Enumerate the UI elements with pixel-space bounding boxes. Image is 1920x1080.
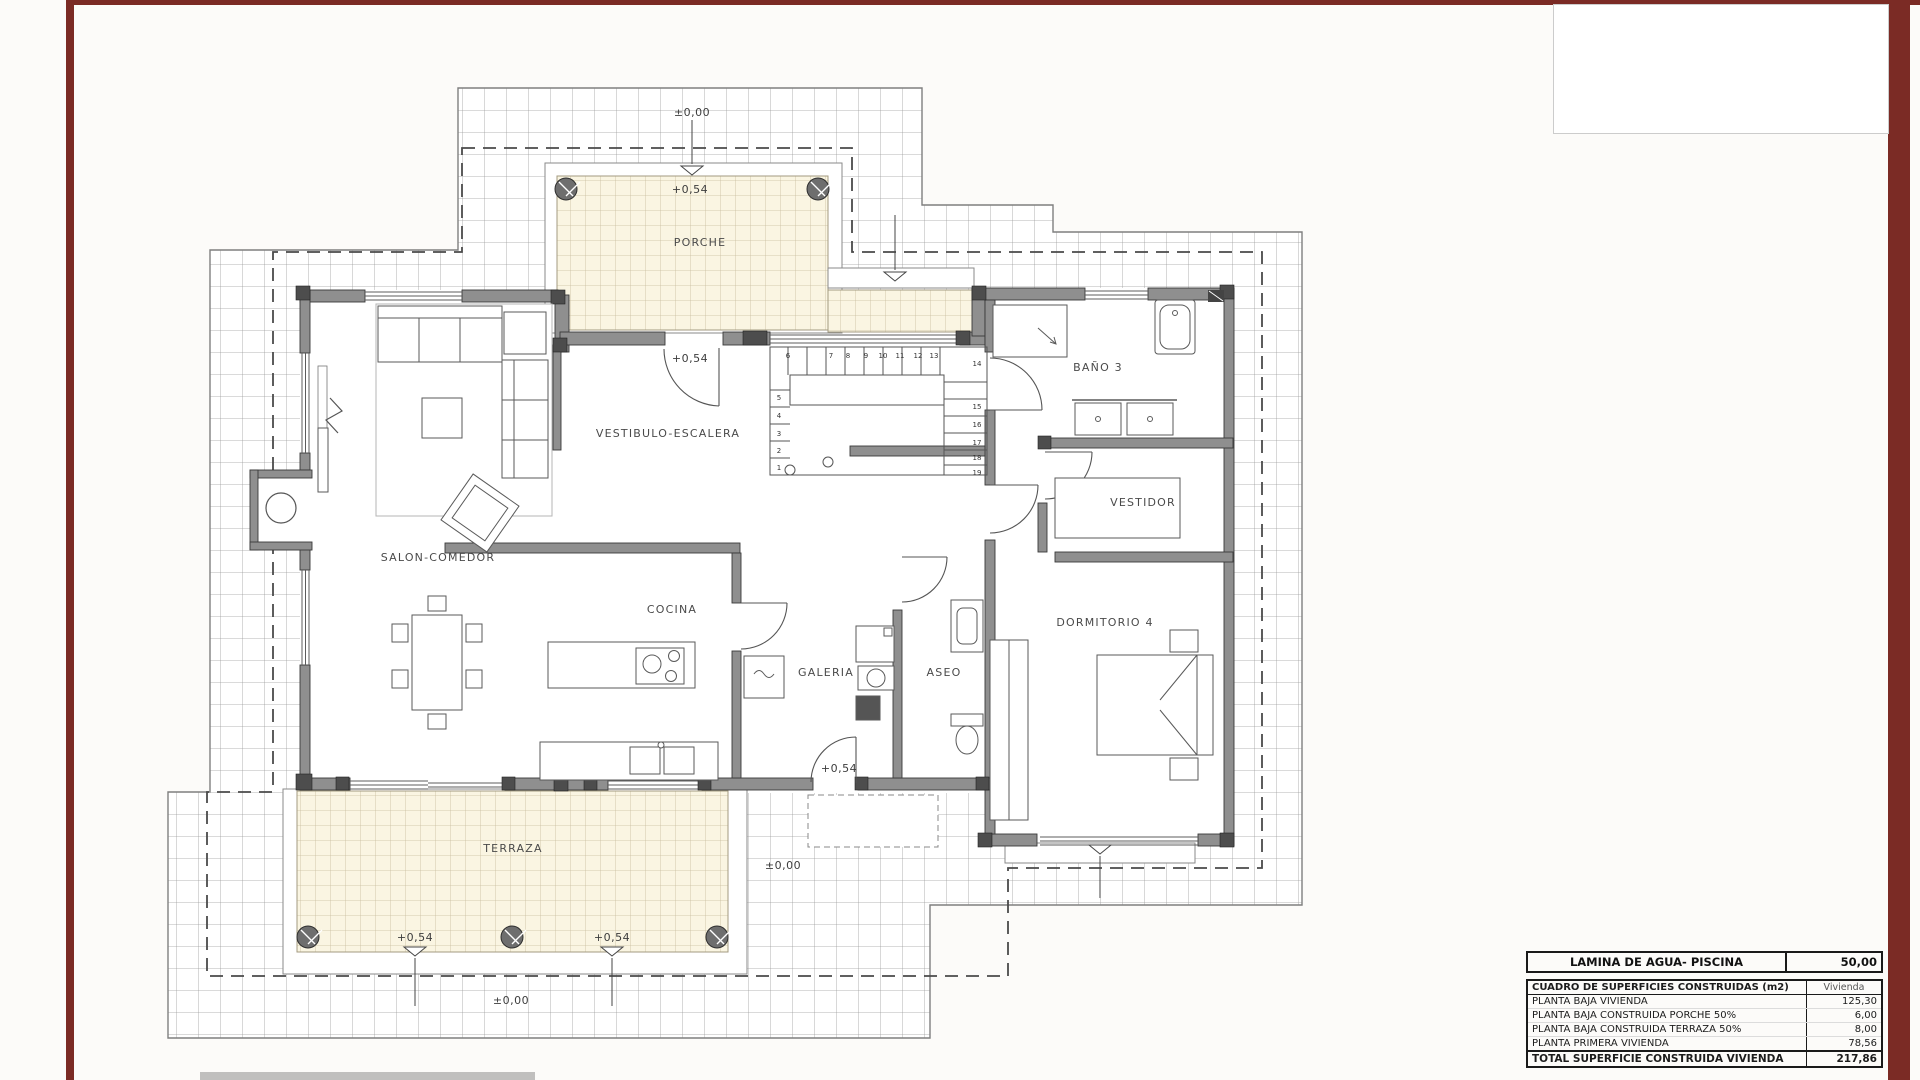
surfaces-table: CUADRO DE SUPERFICIES CONSTRUIDAS (m2) V… xyxy=(1526,979,1883,1068)
stair-number: 16 xyxy=(973,421,982,429)
cutoff-text-fragment xyxy=(200,1072,535,1080)
room-label-vestibulo: VESTIBULO-ESCALERA xyxy=(596,427,740,440)
room-label-galeria: GALERIA xyxy=(798,666,854,679)
water-heater xyxy=(744,656,784,698)
rear-landing xyxy=(808,795,938,847)
stair-number: 19 xyxy=(973,469,982,477)
stair-number: 17 xyxy=(973,439,982,447)
level-label-backdoor: +0,54 xyxy=(821,762,857,775)
stair-number: 2 xyxy=(777,447,781,455)
level-label-terrace-1: +0,54 xyxy=(397,931,433,944)
table-total-row: TOTAL SUPERFICIE CONSTRUIDA VIVIENDA 217… xyxy=(1527,1051,1882,1067)
page-border-left xyxy=(66,0,74,1080)
stair-number: 9 xyxy=(864,352,868,360)
table-row: PLANTA PRIMERA VIVIENDA 78,56 xyxy=(1527,1037,1882,1052)
row-label: PLANTA BAJA CONSTRUIDA TERRAZA 50% xyxy=(1527,1023,1807,1037)
laundry-basin xyxy=(858,666,894,690)
floor-plan: 1 2 3 4 5 6 7 8 9 10 11 12 13 14 15 16 1… xyxy=(0,0,1920,1080)
room-label-bano3: BAÑO 3 xyxy=(1073,361,1123,374)
table-row: PLANTA BAJA CONSTRUIDA PORCHE 50% 6,00 xyxy=(1527,1009,1882,1023)
total-label: TOTAL SUPERFICIE CONSTRUIDA VIVIENDA xyxy=(1527,1051,1807,1067)
surfaces-header-value: Vivienda xyxy=(1807,980,1883,995)
drawing-page: 1 2 3 4 5 6 7 8 9 10 11 12 13 14 15 16 1… xyxy=(0,0,1920,1080)
total-value: 217,86 xyxy=(1807,1051,1883,1067)
kitchen-sink xyxy=(540,742,718,780)
row-value: 6,00 xyxy=(1807,1009,1883,1023)
shower xyxy=(993,305,1067,357)
stair-number: 11 xyxy=(896,352,905,360)
bedroom-wardrobe xyxy=(990,640,1028,820)
kitchen-island xyxy=(548,642,695,688)
room-label-vestidor: VESTIDOR xyxy=(1110,496,1176,509)
room-label-dormitorio4: DORMITORIO 4 xyxy=(1056,616,1153,629)
surfaces-header-label: CUADRO DE SUPERFICIES CONSTRUIDAS (m2) xyxy=(1527,980,1807,995)
row-value: 78,56 xyxy=(1807,1037,1883,1052)
stair-number: 8 xyxy=(846,352,850,360)
row-label: PLANTA PRIMERA VIVIENDA xyxy=(1527,1037,1807,1052)
level-label-porch: +0,54 xyxy=(672,183,708,196)
pool-label: LAMINA DE AGUA- PISCINA xyxy=(1527,952,1786,972)
stair-number: 14 xyxy=(973,360,982,368)
terrace xyxy=(283,789,747,974)
stair-number: 10 xyxy=(879,352,888,360)
stair-number: 13 xyxy=(930,352,939,360)
level-label-zero-top: ±0,00 xyxy=(674,106,710,119)
washing-machine xyxy=(856,626,894,662)
fireplace-niche xyxy=(250,470,312,550)
room-label-salon: SALON-COMEDOR xyxy=(381,551,495,564)
wall-unit xyxy=(318,428,328,492)
stair-number: 15 xyxy=(973,403,982,411)
stair-number: 3 xyxy=(777,430,781,438)
stair-number: 4 xyxy=(777,412,782,420)
table-row: PLANTA BAJA VIVIENDA 125,30 xyxy=(1527,995,1882,1009)
row-label: PLANTA BAJA CONSTRUIDA PORCHE 50% xyxy=(1527,1009,1807,1023)
stair-number: 12 xyxy=(914,352,923,360)
table-header-row: CUADRO DE SUPERFICIES CONSTRUIDAS (m2) V… xyxy=(1527,980,1882,995)
level-label-zero-bottom: ±0,00 xyxy=(493,994,529,1007)
page-border-right xyxy=(1888,0,1910,1080)
row-value: 125,30 xyxy=(1807,995,1883,1009)
level-label-zero-right: ±0,00 xyxy=(765,859,801,872)
row-label: PLANTA BAJA VIVIENDA xyxy=(1527,995,1807,1009)
stair-number: 6 xyxy=(786,352,791,360)
table-row: LAMINA DE AGUA- PISCINA 50,00 xyxy=(1527,952,1882,972)
aseo-sink xyxy=(951,600,983,652)
surface-tables: LAMINA DE AGUA- PISCINA 50,00 CUADRO DE … xyxy=(1526,951,1883,1068)
table-row: PLANTA BAJA CONSTRUIDA TERRAZA 50% 8,00 xyxy=(1527,1023,1882,1037)
coffee-table xyxy=(422,398,462,438)
galeria-cabinet xyxy=(856,696,880,720)
pool-value: 50,00 xyxy=(1786,952,1882,972)
level-label-terrace-2: +0,54 xyxy=(594,931,630,944)
pool-table: LAMINA DE AGUA- PISCINA 50,00 xyxy=(1526,951,1883,973)
room-label-aseo: ASEO xyxy=(927,666,962,679)
stair-number: 7 xyxy=(829,352,833,360)
stair-number: 18 xyxy=(973,454,982,462)
room-label-cocina: COCINA xyxy=(647,603,697,616)
bathtub xyxy=(1155,300,1195,354)
room-label-porche: PORCHE xyxy=(674,236,727,249)
row-value: 8,00 xyxy=(1807,1023,1883,1037)
room-label-terraza: TERRAZA xyxy=(482,842,543,855)
stair-number: 1 xyxy=(777,464,781,472)
title-block-empty-box xyxy=(1553,4,1889,134)
stair-number: 5 xyxy=(777,394,781,402)
level-label-entry: +0,54 xyxy=(672,352,708,365)
